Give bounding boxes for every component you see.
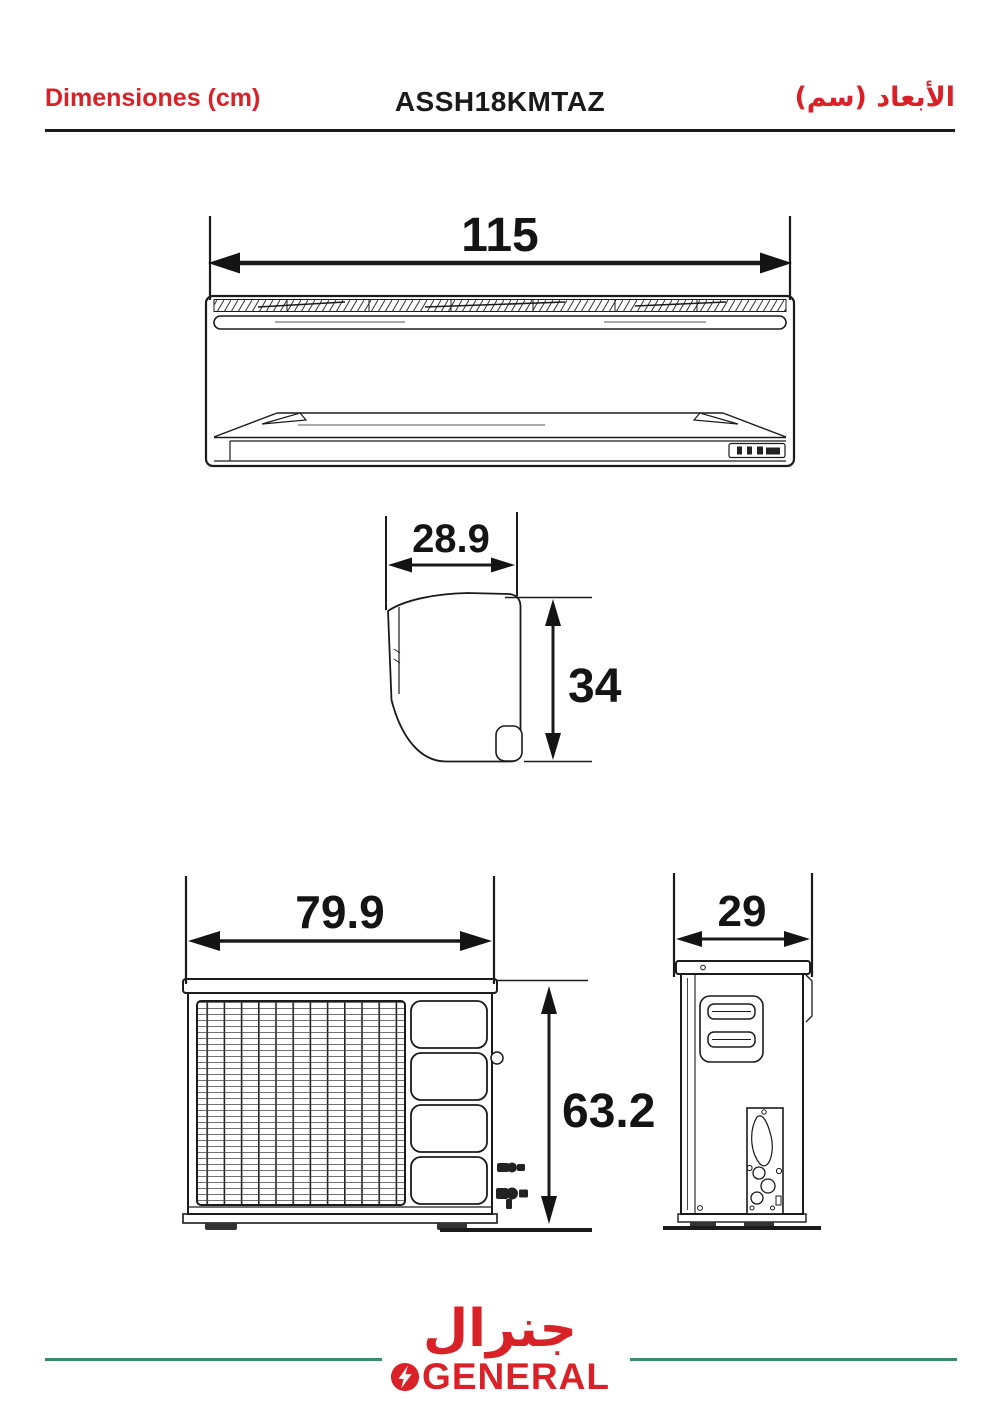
outdoor-height-value: 63.2 bbox=[562, 1085, 655, 1138]
brand-name-wordmark: GENERAL bbox=[422, 1358, 610, 1395]
indicator-panel bbox=[729, 444, 785, 458]
indoor-width-value: 115 bbox=[461, 209, 538, 262]
outdoor-width-value: 79.9 bbox=[295, 886, 385, 938]
indoor-side-body bbox=[388, 593, 522, 762]
indoor-front-body bbox=[206, 296, 794, 466]
dimensions-spec-sheet: Dimensiones (cm) ASSH18KMTAZ الأبعاد (سم… bbox=[0, 0, 1000, 1415]
indoor-front-width-dimension: 115 bbox=[208, 209, 792, 300]
lightning-circle-icon bbox=[390, 1362, 420, 1392]
outdoor-depth-value: 29 bbox=[718, 887, 767, 936]
brand-arabic-wordmark: جنرال bbox=[0, 1303, 1000, 1355]
outdoor-front-body bbox=[183, 979, 528, 1230]
brand-logo: جنرال GENERAL bbox=[0, 1303, 1000, 1395]
handle bbox=[700, 996, 763, 1062]
technical-drawings: 115 bbox=[0, 0, 1000, 1415]
indoor-depth-value: 28.9 bbox=[412, 517, 490, 561]
indoor-height-value: 34 bbox=[568, 660, 622, 713]
outdoor-side-body bbox=[663, 961, 821, 1228]
valve-cover bbox=[747, 1108, 783, 1214]
outdoor-front-width-dimension: 79.9 bbox=[186, 876, 494, 984]
indoor-unit-front-view: 115 bbox=[206, 209, 794, 466]
outdoor-unit-side-view: 29 bbox=[663, 873, 821, 1228]
outdoor-unit-front-view: 79.9 bbox=[183, 876, 655, 1230]
indoor-side-depth-dimension: 28.9 bbox=[386, 512, 517, 610]
service-valves bbox=[496, 1163, 528, 1210]
indoor-unit-side-view: 28.9 34 bbox=[386, 512, 622, 762]
